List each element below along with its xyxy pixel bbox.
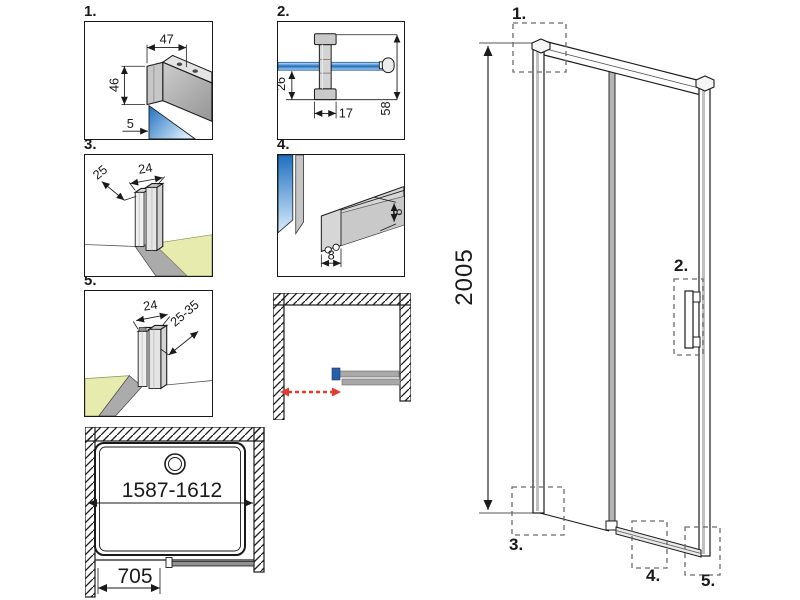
detail4-drawing: 8 8 xyxy=(278,155,404,276)
door-handle xyxy=(685,291,700,348)
door-frame xyxy=(532,39,714,557)
dim-height: 8 xyxy=(390,209,404,216)
glass-bottom-edge xyxy=(540,513,609,531)
detail1-drawing: 47 46 5 xyxy=(85,22,212,139)
roller-stop xyxy=(166,558,172,568)
detail1-box: 47 46 5 xyxy=(84,21,213,140)
callout4-label: 4. xyxy=(646,567,660,585)
detail1-label: 1. xyxy=(84,3,97,21)
dim-height: 2005 xyxy=(451,248,478,305)
dim-depth: 25 xyxy=(90,162,110,183)
dim-side: 46 xyxy=(107,78,122,92)
plan-view-diagram: 1587-1612 705 xyxy=(85,427,272,600)
glass-edge xyxy=(609,71,615,527)
right-post-cap xyxy=(696,76,714,91)
dim-width: 24 xyxy=(137,160,153,177)
dim-range: 25-35 xyxy=(167,297,202,330)
screw-icon xyxy=(192,69,198,73)
callout2-label: 2. xyxy=(674,257,688,275)
slide-direction-arrow xyxy=(280,388,341,397)
detail4-box: 8 8 xyxy=(277,154,405,277)
arrow-right-icon xyxy=(332,388,341,397)
callout1-label: 1. xyxy=(512,5,526,23)
dim-width: 8 xyxy=(328,247,335,262)
detail2-box: 26 17 58 xyxy=(277,21,405,140)
door-profile xyxy=(146,184,163,251)
adjustable-profile xyxy=(138,325,167,388)
top-view-diagram xyxy=(273,293,411,420)
dim-width-range: 1587-1612 xyxy=(122,479,222,502)
glass-panel xyxy=(278,155,304,234)
detail3-box: 24 25 xyxy=(84,154,213,277)
top-rail xyxy=(544,41,701,95)
detail2-label: 2. xyxy=(277,3,290,21)
dim-width: 24 xyxy=(142,297,158,314)
elevation-drawing: 2005 xyxy=(445,0,800,600)
screw-icon xyxy=(177,63,183,67)
detail2-drawing: 26 17 58 xyxy=(278,22,404,139)
floor xyxy=(85,376,212,416)
detail5-box: 24 25-35 xyxy=(84,290,213,417)
dim-door-width: 705 xyxy=(117,565,152,588)
guide-rail-profile xyxy=(321,186,404,253)
dim-top: 47 xyxy=(160,32,174,47)
technical-drawing-page: 1. 2. 3. 4. 5. xyxy=(0,0,800,600)
dimensions: 26 17 58 xyxy=(278,35,397,121)
dim-offset: 26 xyxy=(278,77,288,91)
detail5-drawing: 24 25-35 xyxy=(85,291,212,416)
glass-edge-cap xyxy=(606,521,617,530)
callout3-label: 3. xyxy=(509,536,523,554)
dim-width: 17 xyxy=(339,105,353,120)
height-dimension: 2005 xyxy=(451,43,541,513)
callout5-label: 5. xyxy=(701,572,715,590)
walls xyxy=(273,293,411,420)
dim-height: 58 xyxy=(378,101,393,115)
detail3-drawing: 24 25 xyxy=(85,155,212,276)
door-panels xyxy=(332,368,400,385)
dim-glass: 5 xyxy=(127,116,134,131)
handle-marker xyxy=(332,368,340,380)
